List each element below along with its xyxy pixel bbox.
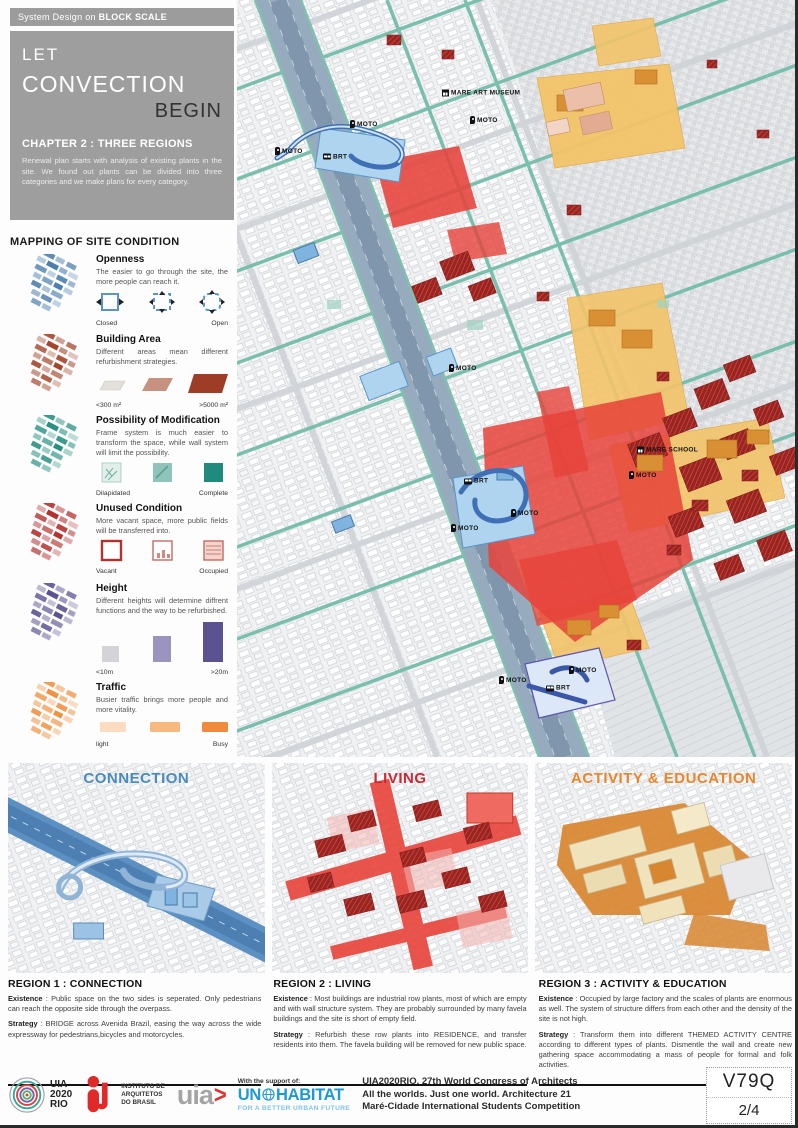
traffic-thumbnail-map: [10, 682, 96, 756]
chapter-heading: CHAPTER 2 : THREE REGIONS: [22, 138, 222, 150]
height-swatches: [96, 619, 228, 668]
legend-item-traffic: Traffic Busier traffic brings more peopl…: [10, 682, 234, 756]
traffic-swatches: [96, 719, 228, 740]
uia2020rio-logo: UIA 2020 RIO: [8, 1076, 72, 1114]
map-label-text: MOTO: [477, 117, 498, 124]
globe-icon: [262, 1088, 275, 1101]
legend-name: Building Area: [96, 334, 228, 345]
pin-icon: [350, 120, 355, 128]
map-label-brt: BRT: [464, 478, 488, 485]
map-label-mare-art-museum: MARE ART MUSEUM: [442, 90, 520, 97]
unused-thumbnail-map: [10, 503, 96, 577]
uia2020rio-rings-icon: [8, 1076, 46, 1114]
entry-code-box: V79Q 2/4: [706, 1067, 792, 1124]
scale-right-label: Open: [211, 320, 228, 327]
map-label-brt: BRT: [323, 153, 347, 160]
unused-swatches: [96, 539, 228, 567]
height-thumbnail-map: [10, 583, 96, 657]
panel-connection: CONNECTION: [8, 763, 265, 973]
map-label-text: MOTO: [282, 148, 303, 155]
legend: MAPPING OF SITE CONDITION Openness The e…: [10, 236, 234, 756]
bus-icon: [464, 478, 472, 484]
connection-illustration: [8, 763, 265, 973]
left-column: System Design on BLOCK SCALE LET CONVECT…: [10, 8, 234, 756]
map-label-text: MOTO: [456, 365, 477, 372]
scale-left-label: light: [96, 741, 108, 748]
title-convection: CONVECTION: [22, 71, 222, 98]
congress-text: UIA2020RIO. 27th World Congress of Archi…: [362, 1076, 580, 1114]
activity-illustration: [535, 763, 792, 973]
modification-thumbnail-map: [10, 415, 96, 489]
legend-desc: Different heights will determine diffren…: [96, 596, 228, 615]
legend-item-modification: Possibility of Modification Frame system…: [10, 415, 234, 497]
site-map: MARE ART MUSEUMMOTOMOTOMOTOBRTMOTOMARE S…: [237, 0, 798, 757]
legend-desc: Frame system is much easier to transform…: [96, 428, 228, 457]
map-label-moto: MOTO: [449, 364, 477, 372]
title-let: LET: [22, 45, 222, 65]
footer-bar: UIA 2020 RIO INSTITUTO DE ARQUITETOS DO …: [8, 1070, 792, 1120]
panel-title-connection: CONNECTION: [8, 770, 265, 787]
map-label-mare-school: MARE SCHOOL: [637, 447, 698, 454]
panel-title-living: LIVING: [272, 770, 529, 787]
region-3-heading: REGION 3 : ACTIVITY & EDUCATION: [539, 978, 792, 990]
living-illustration: [272, 763, 529, 973]
chapter-description: Renewal plan starts with analysis of exi…: [22, 156, 222, 188]
region-1-strategy: Strategy : BRIDGE across Avenida Brazil,…: [8, 1019, 261, 1039]
map-label-text: MOTO: [506, 677, 527, 684]
map-label-text: MOTO: [458, 525, 479, 532]
legend-title: MAPPING OF SITE CONDITION: [10, 236, 234, 248]
legend-name: Unused Condition: [96, 503, 228, 514]
iab-line: DO BRASIL: [121, 1099, 165, 1107]
openness-scale-icons: [96, 290, 228, 319]
map-label-text: MOTO: [636, 472, 657, 479]
uia-word: uia: [177, 1080, 213, 1111]
map-label-moto: MOTO: [629, 471, 657, 479]
title-begin: BEGIN: [22, 100, 222, 123]
kicker-normal: System Design on: [18, 12, 96, 22]
pin-icon: [629, 471, 634, 479]
legend-name: Possibility of Modification: [96, 415, 228, 426]
congress-line: Maré-Cidade International Students Compe…: [362, 1101, 580, 1114]
map-labels-layer: MARE ART MUSEUMMOTOMOTOMOTOBRTMOTOMARE S…: [237, 0, 798, 757]
map-label-moto: MOTO: [499, 676, 527, 684]
page-number: 2/4: [707, 1098, 791, 1123]
map-label-text: BRT: [474, 478, 488, 485]
map-label-moto: MOTO: [275, 147, 303, 155]
school-icon: [637, 447, 644, 454]
panel-living: LIVING: [272, 763, 529, 973]
map-label-text: BRT: [556, 685, 570, 692]
un-habitat-logo: With the support of: UN HABITAT FOR A BE…: [238, 1078, 350, 1113]
bus-icon: [323, 154, 331, 160]
scale-right-label: >20m: [211, 669, 228, 676]
map-label-moto: MOTO: [470, 116, 498, 124]
bus-icon: [546, 685, 554, 691]
region-1-existence: Existence : Public space on the two side…: [8, 994, 261, 1014]
legend-item-building-area: Building Area Different areas mean diffe…: [10, 334, 234, 409]
pin-icon: [451, 524, 456, 532]
un-habitat-tagline: FOR A BETTER URBAN FUTURE: [238, 1105, 350, 1112]
modification-swatches: [96, 461, 228, 489]
map-label-text: MOTO: [357, 121, 378, 128]
region-3-existence: Existence : Occupied by large factory an…: [539, 994, 792, 1025]
legend-item-unused: Unused Condition More vacant space, more…: [10, 503, 234, 577]
map-label-moto: MOTO: [569, 666, 597, 674]
scale-right-label: >5000 m²: [199, 402, 228, 409]
openness-thumbnail-map: [10, 254, 96, 328]
legend-desc: Different areas mean different refurbish…: [96, 347, 228, 366]
scale-right-label: Busy: [213, 741, 228, 748]
habitat-text: HABITAT: [276, 1086, 344, 1104]
scale-left-label: Dilapidated: [96, 490, 130, 497]
building-area-thumbnail-map: [10, 334, 96, 408]
region-2-strategy: Strategy : Refurbish these row plants in…: [273, 1030, 526, 1050]
uia2020-line: RIO: [50, 1100, 72, 1110]
map-label-moto: MOTO: [350, 120, 378, 128]
un-text: UN: [238, 1086, 261, 1104]
congress-line: UIA2020RIO. 27th World Congress of Archi…: [362, 1076, 580, 1089]
map-label-moto: MOTO: [511, 509, 539, 517]
region-panels: CONNECTION: [8, 763, 792, 973]
scale-right-label: Complete: [199, 490, 228, 497]
pin-icon: [275, 147, 280, 155]
legend-name: Height: [96, 583, 228, 594]
pin-icon: [569, 666, 574, 674]
region-2-existence: Existence : Most buildings are industria…: [273, 994, 526, 1025]
pin-icon: [499, 676, 504, 684]
uia-arrow-icon: >: [214, 1080, 226, 1110]
legend-desc: Busier traffic brings more people and mo…: [96, 695, 228, 714]
region-3-strategy: Strategy : Transform them into different…: [539, 1030, 792, 1071]
iab-glyph-icon: [84, 1075, 116, 1115]
legend-name: Openness: [96, 254, 228, 265]
title-box: LET CONVECTION BEGIN CHAPTER 2 : THREE R…: [10, 31, 234, 220]
kicker-bar: System Design on BLOCK SCALE: [10, 8, 234, 26]
scale-left-label: Closed: [96, 320, 117, 327]
region-2-heading: REGION 2 : LIVING: [273, 978, 526, 990]
building-area-swatches: [96, 370, 228, 401]
scale-left-label: Vacant: [96, 568, 117, 575]
map-label-text: MARE ART MUSEUM: [451, 90, 520, 97]
support-text: With the support of:: [238, 1078, 350, 1085]
legend-name: Traffic: [96, 682, 228, 693]
scale-left-label: <300 m²: [96, 402, 121, 409]
congress-line: All the worlds. Just one world. Architec…: [362, 1089, 580, 1102]
legend-item-openness: Openness The easier to go through the si…: [10, 254, 234, 328]
pin-icon: [470, 116, 475, 124]
panel-activity: ACTIVITY & EDUCATION: [535, 763, 792, 973]
uia-wordmark: uia>: [177, 1080, 226, 1111]
legend-item-height: Height Different heights will determine …: [10, 583, 234, 676]
iab-line: INSTITUTO DE: [121, 1083, 165, 1091]
iab-logo: INSTITUTO DE ARQUITETOS DO BRASIL: [84, 1075, 165, 1115]
map-label-brt: BRT: [546, 685, 570, 692]
poster-page: System Design on BLOCK SCALE LET CONVECT…: [0, 0, 798, 1128]
map-label-text: BRT: [333, 153, 347, 160]
entry-code: V79Q: [707, 1068, 791, 1098]
map-label-moto: MOTO: [451, 524, 479, 532]
pin-icon: [511, 509, 516, 517]
iab-line: ARQUITETOS: [121, 1091, 165, 1099]
legend-desc: More vacant space, more public fields wi…: [96, 516, 228, 535]
legend-desc: The easier to go through the site, the m…: [96, 267, 228, 286]
map-label-text: MOTO: [518, 510, 539, 517]
scale-right-label: Occupied: [199, 568, 228, 575]
scale-left-label: <10m: [96, 669, 113, 676]
map-label-text: MARE SCHOOL: [646, 447, 698, 454]
museum-icon: [442, 90, 449, 97]
kicker-bold: BLOCK SCALE: [99, 12, 167, 22]
pin-icon: [449, 364, 454, 372]
region-1-heading: REGION 1 : CONNECTION: [8, 978, 261, 990]
panel-title-activity: ACTIVITY & EDUCATION: [535, 770, 792, 787]
map-label-text: MOTO: [576, 667, 597, 674]
